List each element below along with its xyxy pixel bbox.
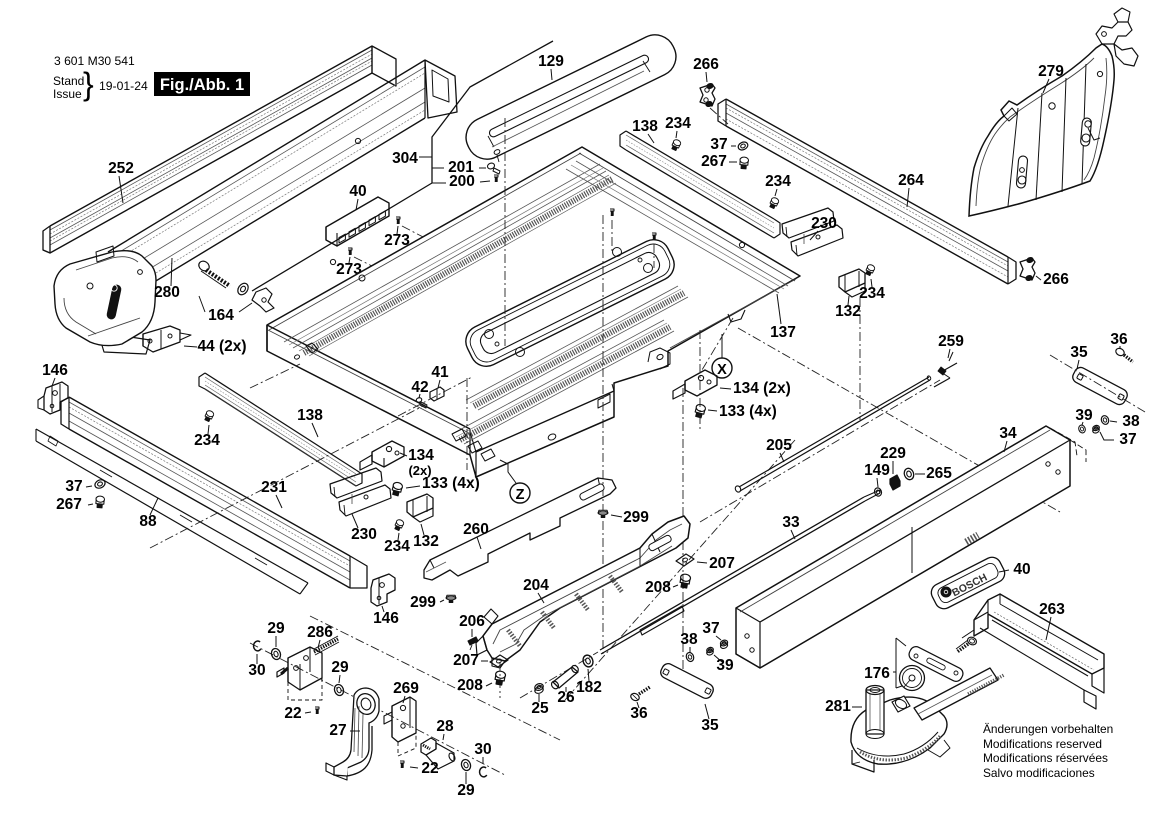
svg-text:234: 234	[194, 432, 220, 449]
svg-text:206: 206	[459, 613, 485, 630]
svg-text:204: 204	[523, 577, 549, 594]
svg-text:281: 281	[825, 698, 851, 715]
svg-text:280: 280	[154, 284, 180, 301]
svg-text:25: 25	[531, 700, 549, 717]
svg-text:37: 37	[710, 136, 727, 153]
svg-text:230: 230	[351, 526, 377, 543]
svg-text:267: 267	[701, 153, 727, 170]
svg-text:22: 22	[284, 705, 301, 722]
svg-text:132: 132	[413, 533, 439, 550]
svg-text:133 (4x): 133 (4x)	[422, 475, 480, 492]
svg-text:149: 149	[864, 462, 890, 479]
svg-text:207: 207	[709, 555, 735, 572]
svg-text:146: 146	[42, 362, 68, 379]
svg-text:138: 138	[632, 118, 658, 135]
svg-text:39: 39	[1075, 407, 1093, 424]
svg-text:40: 40	[349, 183, 366, 200]
svg-text:200: 200	[449, 173, 475, 190]
svg-text:134 (2x): 134 (2x)	[733, 380, 791, 397]
svg-text:304: 304	[392, 150, 418, 167]
svg-text:30: 30	[248, 662, 265, 679]
svg-text:265: 265	[926, 465, 952, 482]
svg-text:33: 33	[782, 514, 800, 531]
svg-text:Issue: Issue	[53, 87, 82, 101]
svg-text:}: }	[83, 66, 94, 102]
svg-text:146: 146	[373, 610, 399, 627]
svg-text:252: 252	[108, 160, 134, 177]
svg-text:Änderungen vorbehalten: Änderungen vorbehalten	[983, 722, 1113, 736]
svg-text:208: 208	[645, 579, 671, 596]
svg-text:88: 88	[139, 513, 157, 530]
svg-text:35: 35	[1070, 344, 1088, 361]
svg-text:3 601 M30 541: 3 601 M30 541	[54, 54, 135, 68]
svg-text:263: 263	[1039, 601, 1065, 618]
svg-text:176: 176	[864, 665, 890, 682]
svg-text:29: 29	[457, 782, 475, 799]
svg-text:234: 234	[384, 538, 410, 555]
svg-text:38: 38	[1122, 413, 1140, 430]
svg-text:29: 29	[267, 620, 285, 637]
svg-text:279: 279	[1038, 63, 1064, 80]
svg-text:X: X	[717, 362, 727, 378]
svg-text:30: 30	[474, 741, 491, 758]
svg-text:Stand: Stand	[53, 74, 84, 88]
svg-text:Salvo modificaciones: Salvo modificaciones	[983, 766, 1095, 780]
svg-text:129: 129	[538, 53, 564, 70]
svg-text:266: 266	[1043, 271, 1069, 288]
svg-text:40: 40	[1013, 561, 1030, 578]
svg-text:37: 37	[702, 620, 719, 637]
svg-text:260: 260	[463, 521, 489, 538]
svg-text:182: 182	[576, 679, 602, 696]
svg-text:264: 264	[898, 172, 924, 189]
svg-text:19-01-24: 19-01-24	[99, 79, 148, 93]
svg-text:299: 299	[410, 594, 436, 611]
svg-text:Modifications réservées: Modifications réservées	[983, 751, 1108, 765]
svg-text:29: 29	[331, 659, 349, 676]
svg-text:207: 207	[453, 652, 479, 669]
svg-text:134: 134	[408, 447, 434, 464]
svg-text:231: 231	[261, 479, 287, 496]
svg-text:266: 266	[693, 56, 719, 73]
svg-text:269: 269	[393, 680, 419, 697]
svg-text:44 (2x): 44 (2x)	[197, 338, 246, 355]
svg-text:234: 234	[859, 285, 885, 302]
svg-text:137: 137	[770, 324, 796, 341]
svg-text:208: 208	[457, 677, 483, 694]
svg-text:22: 22	[421, 760, 438, 777]
svg-text:38: 38	[680, 631, 698, 648]
svg-text:41: 41	[431, 364, 449, 381]
svg-text:259: 259	[938, 333, 964, 350]
svg-text:Z: Z	[516, 487, 525, 503]
svg-text:234: 234	[665, 115, 691, 132]
svg-text:27: 27	[329, 722, 346, 739]
svg-text:132: 132	[835, 303, 861, 320]
svg-text:Modifications reserved: Modifications reserved	[983, 737, 1102, 751]
svg-text:164: 164	[208, 307, 234, 324]
svg-text:28: 28	[436, 718, 454, 735]
svg-text:229: 229	[880, 445, 906, 462]
svg-text:37: 37	[65, 478, 82, 495]
svg-text:34: 34	[999, 425, 1017, 442]
svg-text:138: 138	[297, 407, 323, 424]
svg-text:267: 267	[56, 496, 82, 513]
svg-text:Fig./Abb. 1: Fig./Abb. 1	[160, 76, 244, 94]
svg-text:234: 234	[765, 173, 791, 190]
svg-text:35: 35	[701, 717, 719, 734]
svg-text:42: 42	[411, 379, 428, 396]
svg-text:36: 36	[1110, 331, 1128, 348]
svg-text:299: 299	[623, 509, 649, 526]
svg-text:205: 205	[766, 437, 792, 454]
svg-text:133 (4x): 133 (4x)	[719, 403, 777, 420]
svg-text:286: 286	[307, 624, 333, 641]
svg-text:230: 230	[811, 215, 837, 232]
svg-text:37: 37	[1119, 431, 1136, 448]
